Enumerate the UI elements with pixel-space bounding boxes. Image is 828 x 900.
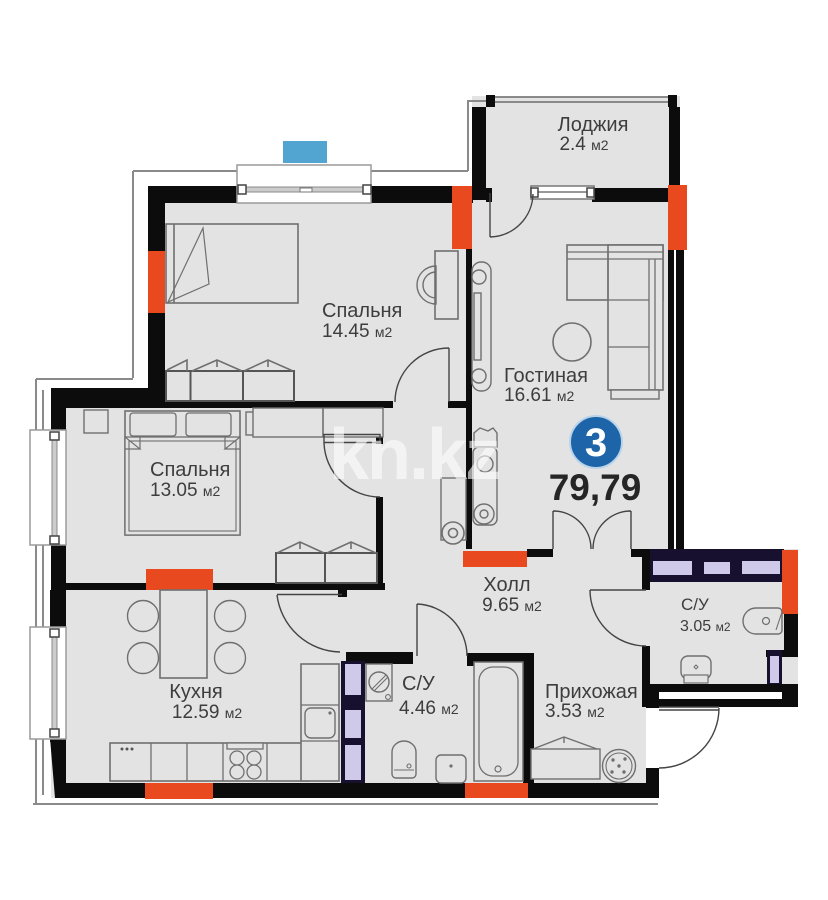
svg-text:16.61 м2: 16.61 м2 <box>504 385 574 406</box>
svg-text:9.65 м2: 9.65 м2 <box>482 595 542 616</box>
svg-text:kn.kz: kn.kz <box>329 415 499 495</box>
svg-text:13.05 м2: 13.05 м2 <box>150 480 220 501</box>
svg-text:Холл: Холл <box>483 574 530 596</box>
svg-text:Гостиная: Гостиная <box>504 365 588 387</box>
svg-text:3.53 м2: 3.53 м2 <box>545 701 605 722</box>
svg-text:4.46 м2: 4.46 м2 <box>399 698 459 719</box>
svg-text:Лоджия: Лоджия <box>558 114 629 136</box>
svg-text:79,79: 79,79 <box>549 467 642 508</box>
svg-text:Прихожая: Прихожая <box>545 681 638 703</box>
svg-text:3.05 м2: 3.05 м2 <box>680 618 731 635</box>
svg-text:12.59 м2: 12.59 м2 <box>172 702 242 723</box>
svg-text:Спальня: Спальня <box>150 459 230 481</box>
svg-text:14.45 м2: 14.45 м2 <box>322 321 392 342</box>
svg-text:С/У: С/У <box>681 595 709 614</box>
svg-text:Спальня: Спальня <box>322 300 402 322</box>
svg-text:С/У: С/У <box>402 673 435 695</box>
svg-text:3: 3 <box>585 421 607 465</box>
svg-text:Кухня: Кухня <box>169 681 223 703</box>
svg-text:2.4 м2: 2.4 м2 <box>559 134 608 155</box>
